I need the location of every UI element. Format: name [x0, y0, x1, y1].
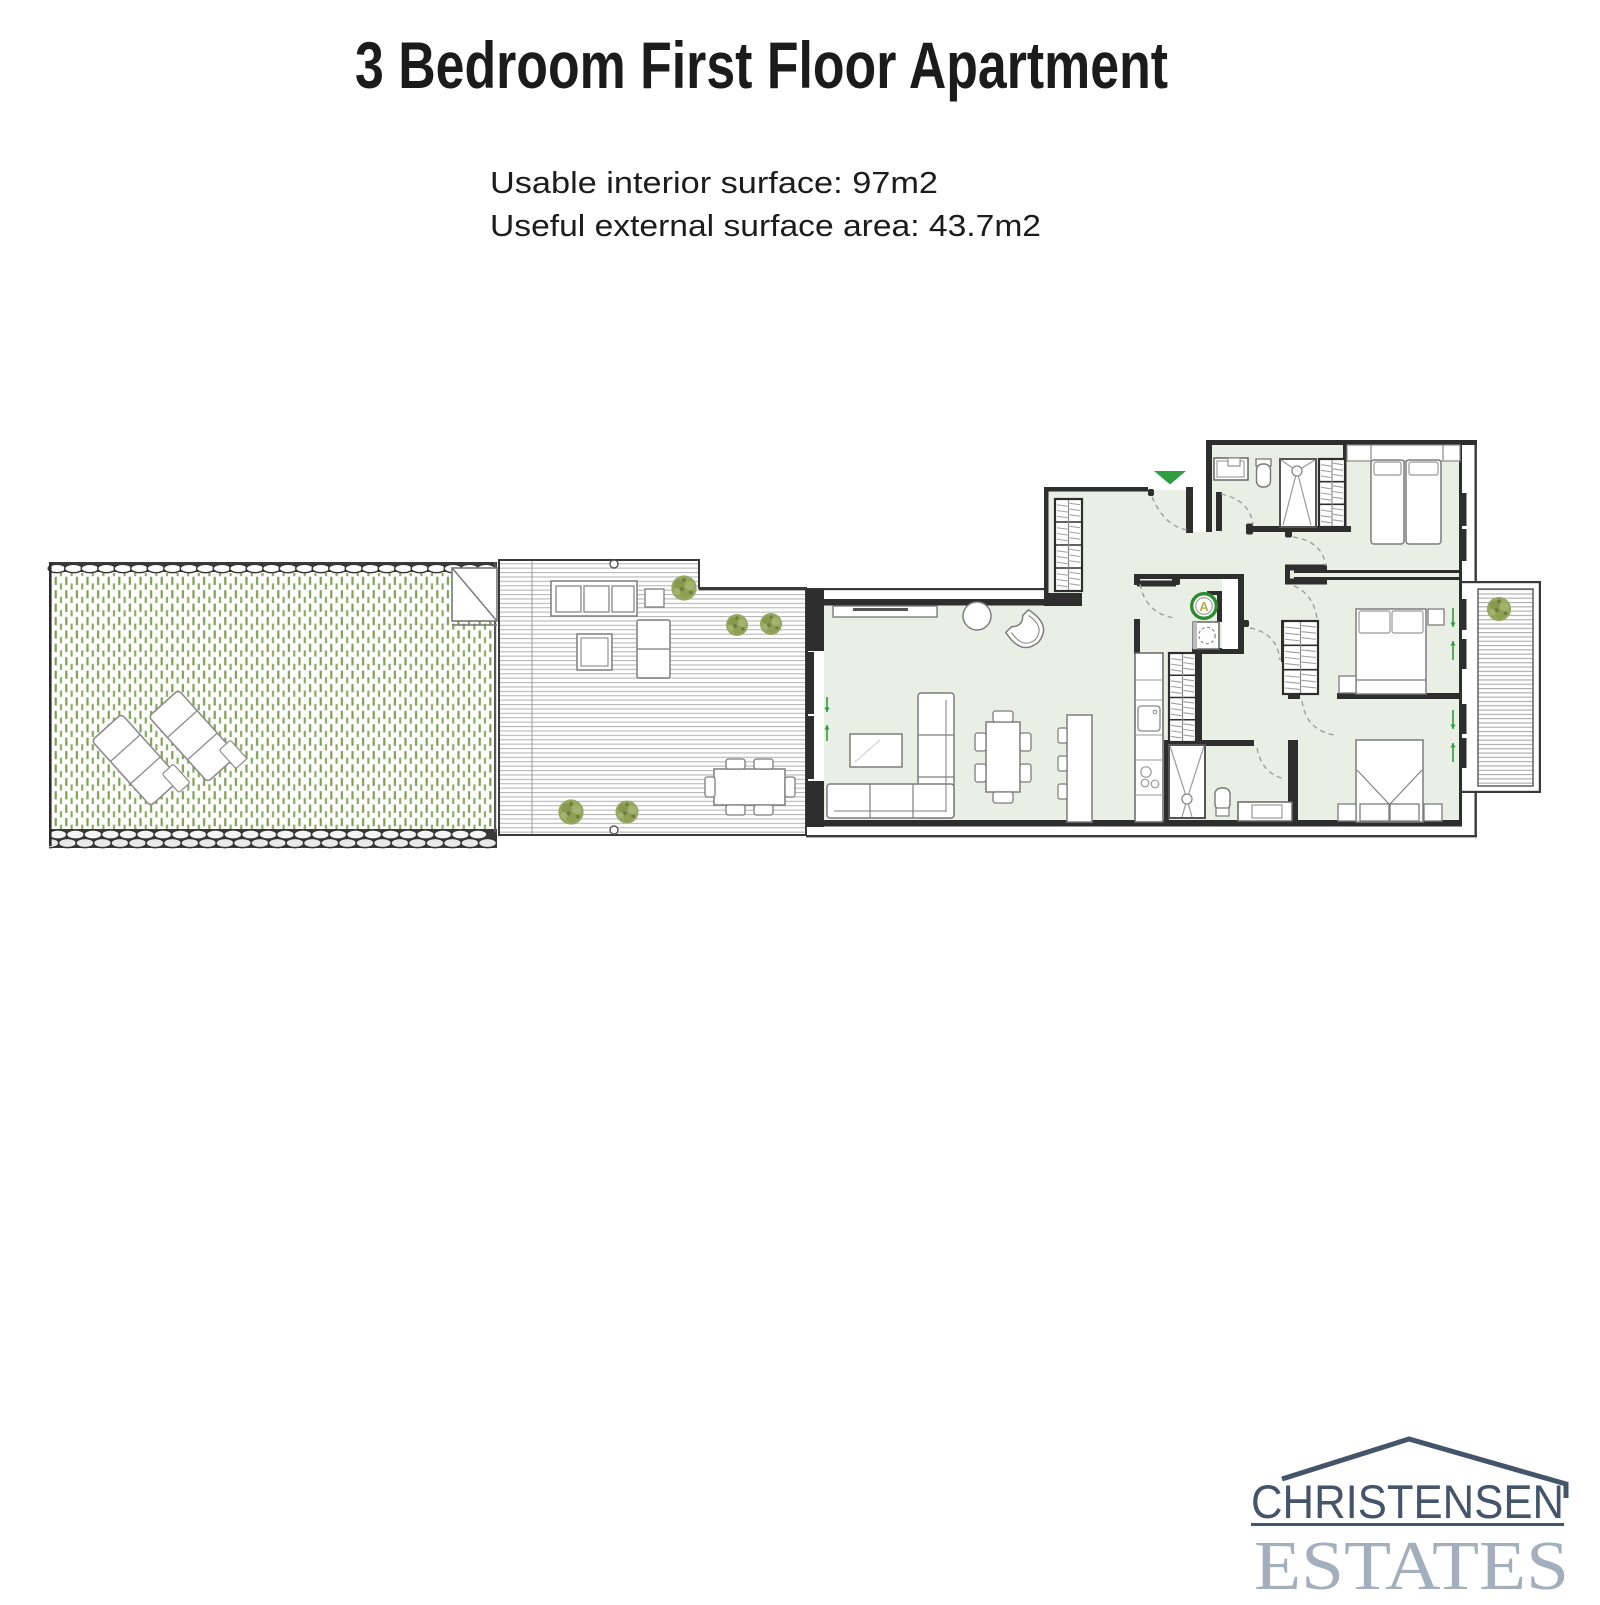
svg-text:ESTATES: ESTATES [1254, 1528, 1569, 1600]
svg-text:Useful external surface area:: Useful external surface area: 43.7m2 [490, 208, 1041, 243]
svg-text:A: A [1199, 599, 1209, 614]
svg-text:CHRISTENSEN: CHRISTENSEN [1251, 1475, 1564, 1528]
svg-text:3 Bedroom First Floor Apartmen: 3 Bedroom First Floor Apartment [355, 28, 1168, 102]
svg-text:Usable interior surface: 97m2: Usable interior surface: 97m2 [490, 165, 938, 200]
